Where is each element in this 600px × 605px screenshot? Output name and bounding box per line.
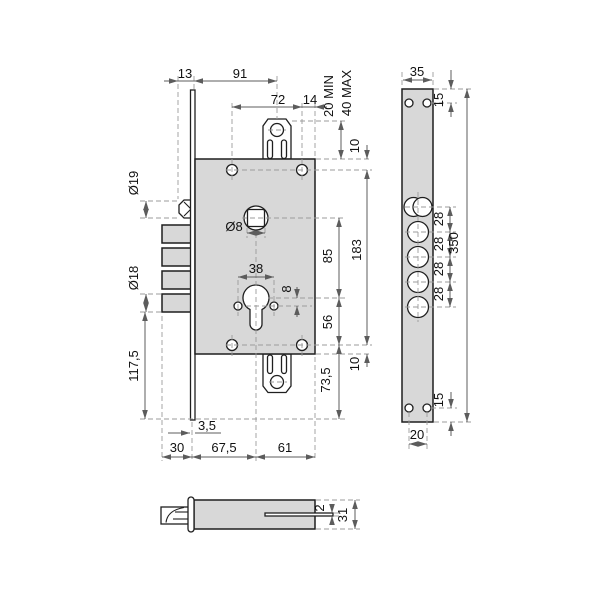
dim-label-28-3: 28 xyxy=(431,262,446,276)
dim-label-15-bottom: 15 xyxy=(431,393,446,407)
dim-label-3-5: 3,5 xyxy=(198,418,216,433)
dim-label-73-5: 73,5 xyxy=(318,367,333,392)
dim-label-28-2: 28 xyxy=(431,237,446,251)
section-key-plate xyxy=(265,513,333,516)
dim-label-61: 61 xyxy=(278,440,292,455)
dim-label-72: 72 xyxy=(271,92,285,107)
dim-label-350: 350 xyxy=(446,232,461,254)
dim-label-56: 56 xyxy=(320,315,335,329)
dim-label-20min: 20 MIN xyxy=(321,75,336,117)
dim-label-15-top: 15 xyxy=(431,93,446,107)
dim-label-8: 8 xyxy=(279,285,294,292)
deadbolt-3 xyxy=(162,271,192,289)
bottom-mounting-tab xyxy=(263,354,291,393)
dim-label-10-bottom: 10 xyxy=(347,357,362,371)
dim-label-35: 35 xyxy=(410,64,424,79)
dim-label-dia18: Ø18 xyxy=(126,266,141,291)
deadbolt-4 xyxy=(162,294,192,312)
dim-label-85: 85 xyxy=(320,249,335,263)
section-view xyxy=(161,497,333,532)
lock-technical-drawing: 13 91 72 14 20 MIN 40 MAX 10 183 85 56 7… xyxy=(0,0,600,600)
dim-label-13: 13 xyxy=(178,66,192,81)
top-mounting-tab xyxy=(263,119,291,159)
deadbolt-1 xyxy=(162,225,192,243)
section-faceplate xyxy=(188,497,194,532)
dim-label-40max: 40 MAX xyxy=(339,70,354,117)
dim-label-10-top: 10 xyxy=(347,139,362,153)
dim-label-91: 91 xyxy=(233,66,247,81)
dim-label-31: 31 xyxy=(335,508,350,522)
dim-label-14: 14 xyxy=(303,92,317,107)
dim-label-183: 183 xyxy=(349,239,364,261)
side-view xyxy=(402,89,433,422)
dim-label-2: 2 xyxy=(312,504,327,511)
dim-label-117-5: 117,5 xyxy=(126,350,141,382)
section-latch xyxy=(161,507,189,524)
front-view xyxy=(162,90,315,420)
dim-label-28-1: 28 xyxy=(431,212,446,226)
dim-label-28-4: 28 xyxy=(431,287,446,301)
dim-label-38: 38 xyxy=(249,261,263,276)
deadbolts xyxy=(162,225,192,312)
dim-label-20: 20 xyxy=(410,427,424,442)
dim-label-dia8: Ø8 xyxy=(225,219,242,234)
dim-label-30: 30 xyxy=(170,440,184,455)
spindle-hole xyxy=(244,206,268,230)
dim-label-dia19: Ø19 xyxy=(126,171,141,196)
drawing-canvas: 13 91 72 14 20 MIN 40 MAX 10 183 85 56 7… xyxy=(0,0,600,600)
deadbolt-2 xyxy=(162,248,192,266)
dim-label-67-5: 67,5 xyxy=(211,440,236,455)
